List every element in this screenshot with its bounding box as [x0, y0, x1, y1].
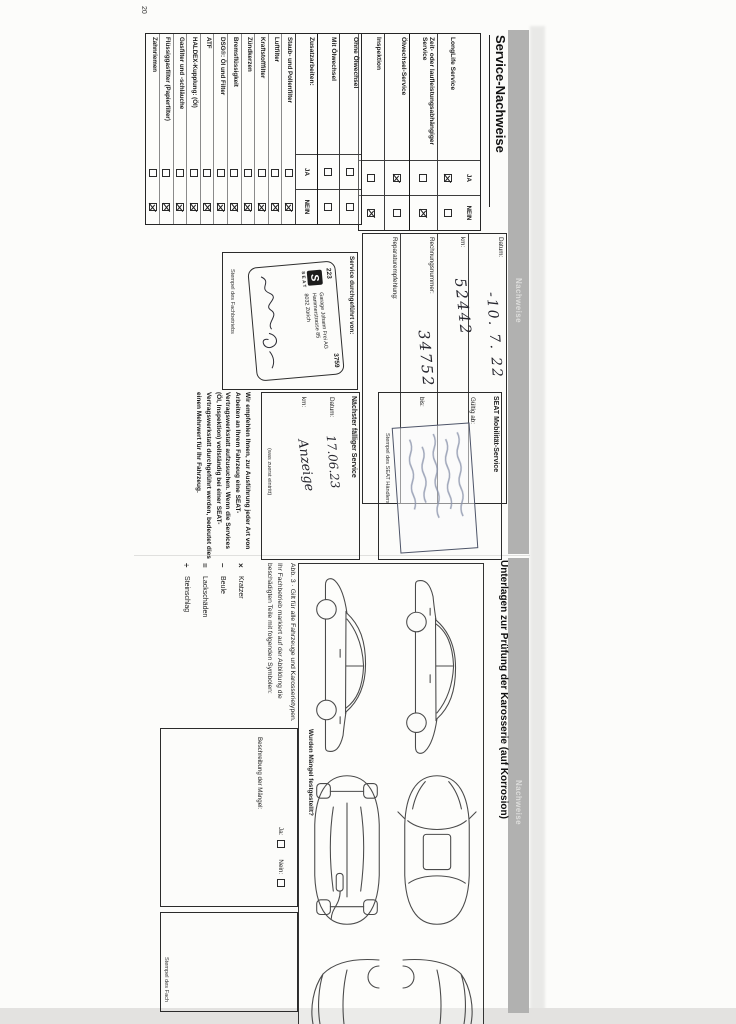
nein-checkbox — [444, 209, 452, 217]
legend-item: ÷Steinschlag — [178, 563, 196, 683]
nein-cell — [146, 190, 159, 224]
detail-label: Rechnungsnummer: — [428, 237, 435, 294]
nein-column-header: NEIN — [296, 189, 317, 224]
damage-legend: ×Kratzer–Beule=Lackschäden÷Steinschlag — [178, 563, 250, 683]
detail-handwritten-value: -10. 7. 22 — [483, 292, 505, 380]
car-side-view-left-icon — [393, 572, 479, 760]
car-top-view-icon — [393, 764, 481, 936]
performed-box-footer: Stempel des Fachbetriebs — [229, 269, 235, 334]
nein-cell — [255, 190, 268, 224]
table-row: HALDEX-Kupplung: (Öl) — [187, 34, 201, 224]
table-row: Inspektion — [359, 34, 385, 230]
row-label: Zündkerzen — [242, 34, 255, 156]
nein-checkbox — [258, 203, 266, 211]
seat-logo-icon: S — [307, 270, 323, 286]
extra-header-label: Zusatzarbeiten: — [296, 34, 317, 154]
ja-cell — [174, 156, 187, 190]
table-row: Staub- und Pollenfilter — [282, 34, 296, 224]
row-label: ATF — [201, 34, 214, 156]
mobility-service-box: SEAT Mobilität-Service Gültig ab: bis: S… — [378, 392, 502, 560]
ja-cell — [242, 156, 255, 190]
mobility-box-title: SEAT Mobilität-Service — [492, 393, 501, 559]
performed-by-box: Service durchgeführt von: 223 3759 S SEA… — [222, 252, 358, 390]
row-label: Luftfilter — [269, 34, 282, 156]
nein-checkbox — [162, 203, 170, 211]
recommendation-paragraph: Wir empfehlen Ihnen, zur Ausführung jede… — [194, 392, 253, 560]
legend-symbol-icon: × — [237, 563, 246, 576]
ja-cell — [160, 156, 173, 190]
nein-checkbox — [244, 203, 252, 211]
row-label: HALDEX-Kupplung: (Öl) — [187, 34, 200, 156]
nein-cell — [282, 190, 295, 224]
row-label: LongLife Service — [438, 34, 458, 160]
car-diagram-box — [298, 563, 484, 1024]
ja-cell — [201, 156, 214, 190]
legend-label: Beule — [220, 576, 227, 594]
ja-checkbox — [285, 169, 293, 177]
workshop-stamp-box: Stempel des Fach — [160, 912, 298, 1012]
ja-cell — [318, 154, 339, 189]
legend-item: =Lackschäden — [196, 563, 214, 683]
page-number: 20 — [140, 6, 147, 14]
next-service-title: Nächster fälliger Service — [350, 393, 359, 559]
nein-cell — [201, 190, 214, 224]
defects-question: Wurden Mängel festgestellt? — [307, 729, 314, 816]
row-label: Zahnriemen — [146, 34, 159, 156]
row-label: Kraftstofffilter — [255, 34, 268, 156]
nein-checkbox — [176, 203, 184, 211]
nein-cell — [187, 190, 200, 224]
right-band-tab-label: Nachweise — [514, 780, 523, 825]
ja-cell — [385, 160, 409, 195]
legend-label: Steinschlag — [184, 576, 191, 612]
defects-yes-label: Ja: — [278, 827, 285, 835]
legend-label: Lackschäden — [202, 576, 209, 617]
nein-cell — [318, 189, 339, 224]
ja-checkbox — [190, 169, 198, 177]
nein-checkbox — [393, 209, 401, 217]
service-table-header: JA NEIN — [458, 34, 480, 230]
defects-description-label: Beschreibung der Mängel: — [256, 737, 263, 809]
defects-no-label: Nein: — [278, 859, 285, 874]
ja-checkbox — [230, 169, 238, 177]
nein-cell — [269, 190, 282, 224]
dealer-address: Garage Johann Frei AG Hammerstrasse 85 8… — [302, 292, 329, 351]
row-label: Ohne Ölwechsel — [340, 34, 361, 154]
right-page-title: Unterlagen zur Prüfung der Karosserie (a… — [498, 560, 509, 860]
ja-checkbox — [149, 169, 157, 177]
ja-checkbox — [444, 174, 452, 182]
ja-column-header: JA — [296, 154, 317, 189]
ja-cell — [282, 156, 295, 190]
row-label: Flüssiggasfilter (Papierfilter) — [160, 34, 173, 156]
next-date-label: Datum: — [328, 397, 335, 417]
dealer-stamp: 223 3759 S SEAT Garage Johann Frei AG Ha… — [247, 260, 345, 381]
ja-cell — [228, 156, 241, 190]
table-row: Mit Ölwechsel — [318, 34, 340, 224]
nein-cell — [242, 190, 255, 224]
next-service-box: Nächster fälliger Service Datum: 17.06.2… — [261, 392, 360, 560]
stamp-number-right: 3759 — [332, 353, 340, 368]
valid-to-label: bis: — [418, 397, 425, 407]
table-row: LongLife Service — [438, 34, 458, 230]
left-page-header-band: Nachweise — [508, 30, 529, 554]
table-row: ATF — [201, 34, 215, 224]
ja-cell — [269, 156, 282, 190]
nein-cell — [410, 195, 437, 230]
illegible-stamp-text — [397, 424, 477, 549]
nein-checkbox — [285, 203, 293, 211]
row-label: DSG®: Öl und Filter — [214, 34, 227, 156]
extra-table-header: Zusatzarbeiten:JANEIN — [296, 34, 318, 224]
ja-checkbox — [393, 174, 401, 182]
right-page-header-band: Nachweise — [508, 558, 529, 1013]
service-table-rows: LongLife ServiceZeit- oder laufleistungs… — [359, 34, 458, 230]
service-header-spacer — [458, 34, 480, 160]
ja-checkbox — [176, 169, 184, 177]
row-label: Staub- und Pollenfilter — [282, 34, 295, 156]
ja-checkbox — [347, 168, 355, 176]
nein-cell — [385, 195, 409, 230]
table-row: Flüssiggasfilter (Papierfilter) — [160, 34, 174, 224]
ja-cell — [255, 156, 268, 190]
stamp-number-left: 223 — [325, 268, 333, 279]
nein-checkbox — [368, 209, 376, 217]
detail-handwritten-value: 34752 — [415, 329, 438, 388]
figure-caption: Abb. 3 · Gilt für alle Fahrzeuge und Kar… — [289, 563, 296, 722]
row-label: Bremsflüssigkeit — [228, 34, 241, 156]
next-km-label: km: — [300, 397, 307, 407]
defects-yes-checkbox — [277, 840, 285, 848]
legend-item: –Beule — [214, 563, 232, 683]
car-partial-view-top-icon — [397, 956, 477, 1024]
ja-checkbox — [420, 174, 428, 182]
next-service-note: (was zuerst eintritt) — [266, 448, 272, 495]
defects-box: Ja: Nein: Beschreibung der Mängel: — [160, 728, 298, 907]
nein-checkbox — [347, 203, 355, 211]
nein-cell — [359, 195, 384, 230]
car-side-view-right-icon — [303, 572, 389, 760]
scanned-document-viewport: Nachweise Service-Nachweise JA NEIN Long… — [0, 0, 736, 1024]
ja-checkbox — [258, 169, 266, 177]
ja-checkbox — [325, 168, 333, 176]
performed-by-label: Service durchgeführt von: — [348, 253, 357, 389]
nein-cell — [174, 190, 187, 224]
seat-dealer-stamp-faint — [392, 422, 479, 553]
ja-cell — [214, 156, 227, 190]
nein-checkbox — [203, 203, 211, 211]
ja-checkbox — [162, 169, 170, 177]
row-label: Mit Ölwechsel — [318, 34, 339, 154]
car-partial-view-bottom-icon — [307, 956, 387, 1024]
car-underbody-view-icon — [303, 764, 391, 936]
nein-checkbox — [149, 203, 157, 211]
nein-checkbox — [271, 203, 279, 211]
table-row: Gasfilter und -schläuche — [174, 34, 188, 224]
legend-symbol-icon: ÷ — [183, 563, 192, 576]
ja-cell — [359, 160, 384, 195]
detail-label: km: — [459, 237, 466, 247]
left-page-title: Service-Nachweise — [489, 35, 508, 207]
detail-label: Datum: — [497, 237, 504, 257]
ja-column-header: JA — [458, 160, 480, 195]
detail-label: Reparaturempfehlung: — [391, 237, 398, 300]
legend-label: Kratzer — [238, 576, 245, 599]
ja-cell — [340, 154, 361, 189]
row-label: Gasfilter und -schläuche — [174, 34, 187, 156]
legend-item: ×Kratzer — [232, 563, 250, 683]
nein-cell — [214, 190, 227, 224]
marking-instruction: Ihr Fachbetrieb markiert auf der Abbildu… — [265, 563, 284, 725]
ja-checkbox — [217, 169, 225, 177]
nein-checkbox — [420, 209, 428, 217]
service-type-table: JA NEIN LongLife ServiceZeit- oder laufl… — [358, 33, 481, 231]
workshop-stamp-footer: Stempel des Fach — [163, 957, 169, 1002]
table-row: Zündkerzen — [242, 34, 256, 224]
valid-from-label: Gültig ab: — [469, 397, 476, 424]
nein-checkbox — [190, 203, 198, 211]
table-row: Luftfilter — [269, 34, 283, 224]
defects-question-row: Wurden Mängel festgestellt? — [307, 729, 314, 907]
page-edge-shadow — [530, 26, 545, 1024]
service-booklet-scan: Nachweise Service-Nachweise JA NEIN Long… — [0, 0, 736, 1024]
mobility-box-footer: Stempel des SEAT Händlers — [384, 433, 390, 504]
legend-symbol-icon: = — [201, 563, 210, 576]
row-label: Zeit- oder laufleistungsabhängiger Ser­v… — [410, 34, 437, 160]
nein-checkbox — [217, 203, 225, 211]
table-row: Zahnriemen — [146, 34, 160, 224]
row-label: Ölwechsel-Service — [385, 34, 409, 160]
legend-symbol-icon: – — [219, 563, 228, 576]
ja-cell — [410, 160, 437, 195]
table-row: Ölwechsel-Service — [385, 34, 410, 230]
row-label: Inspektion — [359, 34, 384, 160]
next-km-value: Anzeige — [294, 438, 316, 492]
ja-cell — [146, 156, 159, 190]
seat-logo-block: S SEAT — [301, 270, 323, 289]
table-row: DSG®: Öl und Filter — [214, 34, 228, 224]
nein-cell — [438, 195, 458, 230]
nein-column-header: NEIN — [458, 195, 480, 230]
ja-cell — [438, 160, 458, 195]
nein-cell — [160, 190, 173, 224]
defects-no-checkbox — [277, 879, 285, 887]
nein-checkbox — [230, 203, 238, 211]
ja-checkbox — [244, 169, 252, 177]
ja-checkbox — [203, 169, 211, 177]
ja-checkbox — [368, 174, 376, 182]
ja-checkbox — [271, 169, 279, 177]
table-row: Zeit- oder laufleistungsabhängiger Ser­v… — [410, 34, 438, 230]
signature-scribble — [253, 273, 284, 375]
table-row: Kraftstofffilter — [255, 34, 269, 224]
table-row: Ohne Ölwechsel — [340, 34, 361, 224]
nein-cell — [228, 190, 241, 224]
ja-cell — [187, 156, 200, 190]
next-date-value: 17.06.23 — [324, 434, 343, 488]
nein-cell — [340, 189, 361, 224]
nein-checkbox — [325, 203, 333, 211]
table-row: Bremsflüssigkeit — [228, 34, 242, 224]
additional-works-table: Ohne ÖlwechselMit ÖlwechselZusatzarbeite… — [145, 33, 362, 225]
left-band-tab-label: Nachweise — [514, 278, 523, 323]
